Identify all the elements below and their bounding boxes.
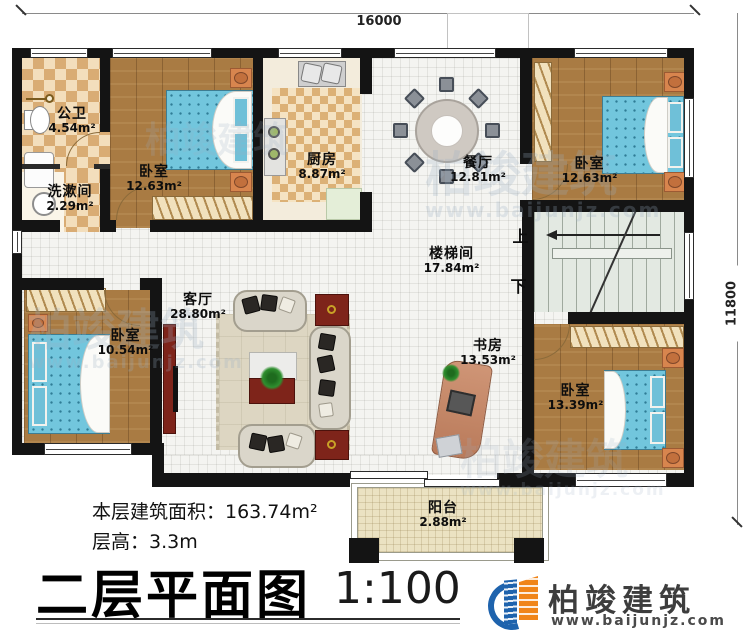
dimension-tick: [15, 4, 26, 15]
room-label-living: 客厅28.80m²: [152, 292, 244, 322]
company-website: www.baijunjz.com: [551, 613, 726, 629]
sliding-door: [350, 471, 428, 479]
chair-icon: [393, 123, 408, 138]
wardrobe-icon: [26, 288, 106, 312]
top-dimension-label: 16000: [342, 14, 416, 29]
company-logo: 柏竣建筑 www.baijunjz.com: [486, 572, 736, 634]
wardrobe-icon: [534, 62, 552, 162]
balcony-pier: [349, 538, 379, 563]
title-underline: [36, 618, 460, 620]
room-label-study: 书房13.53m²: [442, 338, 534, 368]
fridge-icon: [326, 188, 362, 220]
room-label-stairwell: 楼梯间17.84m²: [404, 246, 499, 276]
nightstand: [230, 68, 252, 88]
kitchen-sink-icon: [300, 62, 323, 85]
wall: [150, 220, 372, 232]
stair-arrow-line: [556, 234, 660, 236]
window: [684, 98, 694, 178]
sliding-door: [424, 479, 500, 487]
wall: [253, 48, 263, 232]
sofa-pillow: [249, 433, 268, 452]
stair-down-label: 下: [506, 278, 532, 296]
room-label-bedroom-bottom-left: 卧室10.54m²: [78, 328, 173, 358]
room-label-bedroom-top-left: 卧室12.63m²: [108, 164, 200, 194]
pillow: [32, 386, 47, 426]
logo-icon: [504, 579, 517, 624]
sofa-pillow: [318, 402, 334, 418]
window: [44, 443, 132, 455]
side-table-decor: [327, 305, 336, 314]
room-label-bathroom: 公卫4.54m²: [28, 106, 116, 136]
window: [684, 232, 694, 300]
kitchen-sink-icon: [320, 62, 343, 85]
sofa-pillow: [318, 379, 336, 397]
wall: [520, 200, 694, 212]
wall: [667, 473, 694, 487]
wall: [520, 48, 532, 164]
wall: [497, 473, 577, 487]
pillow: [233, 97, 249, 128]
nightstand: [28, 314, 48, 332]
window: [278, 48, 342, 58]
title-underline: [36, 623, 460, 624]
window: [30, 48, 88, 58]
stair-arrow-head: [546, 230, 557, 240]
sofa-pillow: [318, 333, 337, 352]
room-label-dining: 餐厅12.81m²: [432, 155, 524, 185]
chair-icon: [485, 123, 500, 138]
sofa-pillow: [260, 294, 278, 312]
sofa-pillow: [317, 355, 336, 374]
nightstand: [664, 172, 686, 192]
balcony-pier: [514, 538, 544, 563]
room-label-bedroom-top-right: 卧室12.63m²: [542, 156, 637, 186]
room-label-kitchen: 厨房8.87m²: [276, 152, 368, 182]
window: [394, 48, 496, 58]
partition-wall: [22, 164, 60, 169]
nightstand: [662, 348, 684, 368]
stair-up-label: 上: [508, 228, 534, 246]
floor-plan-page: 16000 11800: [0, 0, 750, 638]
window: [575, 473, 667, 487]
tv-icon: [173, 366, 178, 412]
nightstand: [664, 72, 686, 92]
stove-burner: [268, 126, 280, 138]
wardrobe-icon: [570, 326, 684, 348]
chair-icon: [439, 77, 454, 92]
pillow: [650, 376, 665, 408]
pillow: [668, 137, 683, 168]
window: [12, 230, 22, 254]
pillow: [32, 342, 47, 382]
dining-table-icon: [431, 115, 463, 147]
printer-icon: [435, 434, 462, 458]
room-label-washroom: 洗漱间2.29m²: [24, 184, 116, 214]
wall: [12, 278, 104, 290]
wall: [360, 192, 372, 232]
wall: [12, 48, 22, 232]
side-table-decor: [327, 440, 336, 449]
logo-icon: [519, 576, 538, 620]
window: [112, 48, 212, 58]
room-label-balcony: 阳台2.88m²: [398, 500, 488, 530]
plant-icon: [260, 366, 284, 390]
scale-text: 1:100: [334, 563, 461, 614]
wall: [152, 473, 350, 487]
pillow: [668, 102, 683, 133]
stairwell-floor: [534, 212, 684, 312]
shower-icon: [45, 94, 54, 103]
wardrobe-icon: [152, 196, 253, 220]
wall: [568, 312, 694, 324]
window: [574, 48, 668, 58]
page-title: 二层平面图: [36, 553, 311, 628]
wall: [100, 220, 116, 232]
pillow: [650, 412, 665, 444]
floor-height-text: 层高：3.3m: [92, 527, 198, 554]
nightstand: [662, 448, 684, 468]
stair-handrail: [552, 248, 672, 259]
wall: [360, 48, 372, 94]
right-dimension-label: 11800: [725, 266, 740, 342]
nightstand: [230, 172, 252, 192]
bed-sheet: [644, 97, 668, 173]
floor-area-text: 本层建筑面积：163.74m²: [92, 497, 318, 524]
washing-machine-icon: [24, 152, 54, 188]
room-label-bedroom-bottom-right: 卧室13.39m²: [528, 383, 623, 413]
sofa-pillow: [267, 435, 286, 454]
pillow: [233, 132, 249, 163]
